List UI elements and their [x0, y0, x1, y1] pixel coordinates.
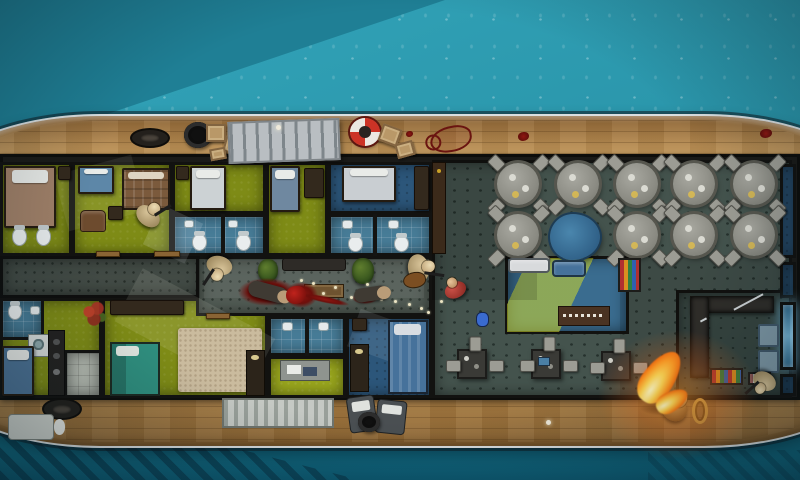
- shell-casing: [420, 307, 423, 310]
- potted-plant: [352, 258, 374, 284]
- bed-double-white: [342, 166, 396, 202]
- toilet: [348, 236, 363, 252]
- deck-lounger: [374, 399, 407, 436]
- tile-room-stern: [64, 350, 102, 398]
- toilet: [12, 228, 27, 246]
- laptop: [538, 357, 550, 366]
- bed-single-striped: [388, 320, 428, 394]
- galley-counter-side: [690, 296, 709, 378]
- couch-white: [508, 258, 550, 273]
- door: [96, 251, 120, 257]
- corridor-west: [0, 256, 204, 298]
- deck-light: [546, 420, 551, 425]
- shell-casing: [427, 311, 430, 314]
- magazine-shelf: [618, 258, 641, 292]
- shell-casing: [440, 300, 443, 303]
- dining-table: [497, 163, 539, 205]
- table-chair: [614, 339, 626, 354]
- dresser: [304, 168, 324, 198]
- wardrobe: [110, 300, 184, 315]
- kitchenette: [48, 330, 65, 396]
- sound-console: [558, 306, 610, 326]
- toilet: [8, 304, 22, 320]
- desk-lamp: [246, 350, 265, 396]
- freezer-room: [780, 302, 796, 370]
- deck-lounger-white: [8, 414, 54, 440]
- stall-divider: [373, 214, 377, 256]
- bed-double-brown: [4, 166, 56, 228]
- table-chair: [563, 360, 578, 372]
- enemy-corridor-east[interactable]: [402, 251, 438, 284]
- shell-casing: [350, 296, 353, 299]
- desk: [350, 344, 369, 392]
- deck-hatch: [222, 398, 334, 428]
- shell-casing: [334, 286, 337, 289]
- shell-casing: [408, 303, 411, 306]
- nightstand: [176, 166, 189, 180]
- bed-single-blue: [78, 166, 114, 194]
- bed-single-white: [190, 166, 226, 210]
- dining-table: [673, 163, 715, 205]
- prep-table: [758, 324, 779, 347]
- cold-room-2: [780, 262, 796, 298]
- table-chair: [590, 362, 605, 374]
- toilet: [236, 234, 251, 251]
- door: [206, 313, 230, 319]
- dining-table: [673, 214, 715, 256]
- stall-divider: [305, 316, 309, 356]
- game-map[interactable]: [0, 0, 800, 480]
- shell-casing: [322, 292, 325, 295]
- shell-casing: [312, 282, 315, 285]
- stall-divider: [221, 214, 225, 256]
- work-desk: [601, 351, 631, 381]
- shell-casing: [394, 300, 397, 303]
- tire-fender: [358, 412, 380, 432]
- work-desk: [457, 349, 487, 379]
- sink: [228, 220, 238, 228]
- office-desk: [280, 360, 330, 381]
- toilet: [394, 236, 409, 252]
- blue-duffel-bag: [476, 312, 489, 327]
- food-shelf: [710, 368, 743, 385]
- corridor-bench: [282, 258, 346, 271]
- wardrobe: [414, 166, 429, 210]
- mooring-cleat: [130, 128, 170, 148]
- sink: [184, 220, 194, 228]
- nightstand: [58, 166, 71, 180]
- door: [154, 251, 180, 257]
- dining-table: [557, 163, 599, 205]
- nightstand: [352, 318, 367, 331]
- dining-table: [733, 214, 775, 256]
- deck-light: [276, 125, 281, 130]
- shell-casing: [366, 283, 369, 286]
- shell-casing: [300, 279, 303, 282]
- couch-blue: [552, 260, 586, 277]
- bed-single-blue: [2, 346, 34, 396]
- table-chair: [470, 337, 482, 352]
- sink: [318, 322, 329, 331]
- toilet: [36, 228, 51, 246]
- rose-decal: [80, 300, 108, 328]
- sink: [342, 220, 353, 229]
- sink: [388, 220, 399, 229]
- armchair: [80, 210, 106, 232]
- cold-room-4: [780, 374, 796, 396]
- crate: [206, 124, 226, 142]
- sink: [30, 306, 40, 315]
- lifebuoy: [350, 118, 380, 146]
- dining-table: [733, 163, 775, 205]
- dining-table: [616, 163, 658, 205]
- table-chair: [446, 360, 461, 372]
- nightstand: [108, 206, 123, 220]
- table-chair: [489, 360, 504, 372]
- table-chair: [520, 360, 535, 372]
- table-chair: [544, 337, 556, 352]
- bed-single-blue: [270, 166, 300, 212]
- toilet: [192, 234, 207, 251]
- wake-stripes-right: [648, 450, 800, 480]
- gangway-ramp: [227, 118, 340, 164]
- bar-bottle-shelf: [432, 162, 446, 254]
- bed-double-teal: [110, 342, 160, 396]
- sink: [282, 322, 293, 331]
- dining-table: [497, 214, 539, 256]
- dining-table: [616, 214, 658, 256]
